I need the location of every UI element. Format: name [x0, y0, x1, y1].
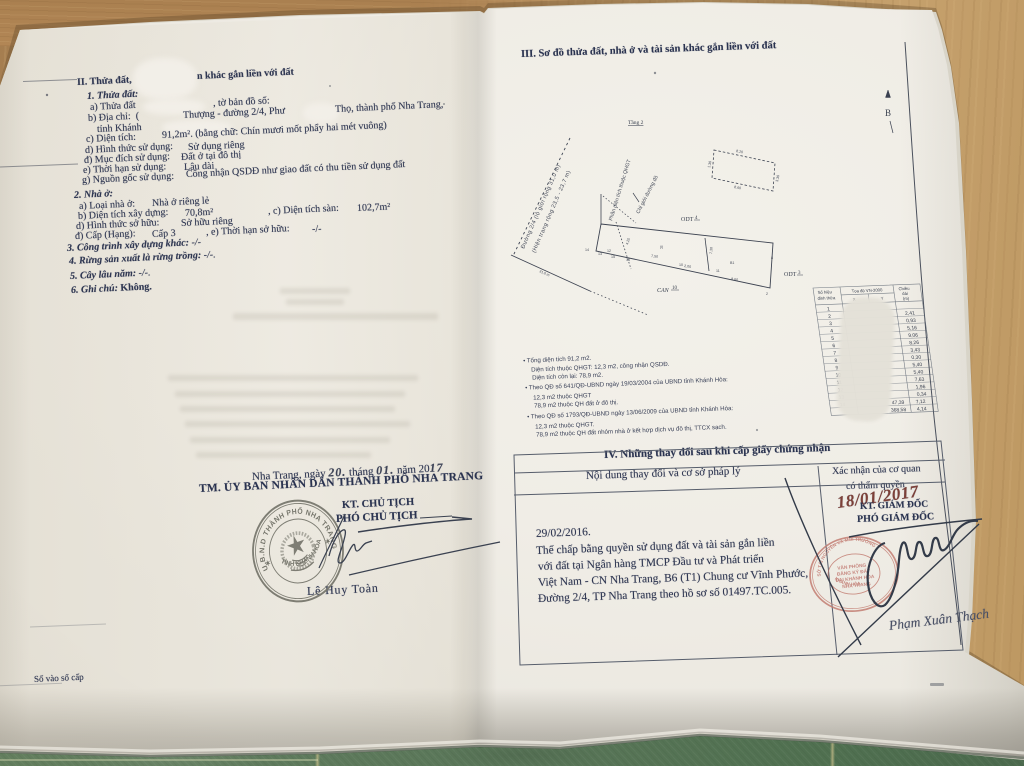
svg-text:0,30: 0,30 [911, 355, 922, 361]
svg-text:2: 2 [766, 292, 768, 296]
svg-text:5: 5 [831, 336, 835, 342]
svg-text:Phần diện tích thuộc QHGT: Phần diện tích thuộc QHGT [608, 158, 633, 221]
svg-text:7,63: 7,63 [914, 377, 925, 383]
svg-text:ODT: ODT [681, 217, 694, 223]
svg-text:5,40: 5,40 [913, 369, 924, 375]
svg-text:CAN: CAN [657, 288, 670, 294]
svg-text:368,58: 368,58 [891, 407, 907, 414]
svg-text:31,0 m: 31,0 m [539, 269, 551, 277]
svg-text:đỉnh thửa: đỉnh thửa [817, 295, 836, 301]
svg-text:3: 3 [829, 321, 833, 327]
svg-text:B: B [885, 108, 891, 118]
svg-text:3,43: 3,43 [910, 347, 921, 353]
svg-text:7,12: 7,12 [915, 399, 926, 405]
svg-text:4,14: 4,14 [917, 406, 928, 412]
svg-text:2,00: 2,00 [684, 264, 691, 269]
svg-text:Tầng 2: Tầng 2 [628, 119, 644, 126]
svg-text:1.30: 1.30 [707, 161, 712, 169]
svg-text:11: 11 [716, 269, 720, 273]
svg-text:14: 14 [585, 248, 589, 252]
svg-text:1: 1 [827, 306, 831, 312]
svg-text:0,93: 0,93 [906, 318, 917, 324]
svg-text:6: 6 [832, 343, 836, 349]
svg-text:3.30: 3.30 [775, 175, 780, 183]
svg-text:2,41: 2,41 [905, 311, 916, 317]
svg-text:0,34: 0,34 [916, 392, 927, 398]
svg-text:Chỉ giới đường đỏ: Chỉ giới đường đỏ [635, 174, 660, 215]
svg-text:5,40: 5,40 [912, 362, 923, 368]
svg-text:(i): (i) [660, 245, 663, 249]
svg-text:8,26: 8,26 [909, 340, 920, 346]
svg-text:4: 4 [830, 328, 834, 334]
svg-text:16: 16 [626, 258, 630, 262]
svg-text:ODT: ODT [784, 272, 797, 278]
svg-text:B1: B1 [730, 261, 734, 265]
svg-text:10: 10 [679, 263, 683, 267]
svg-text:9,06: 9,06 [908, 333, 919, 339]
svg-text:7,30: 7,30 [709, 247, 714, 254]
svg-text:15: 15 [611, 255, 615, 259]
svg-text:1,96: 1,96 [915, 384, 926, 390]
svg-text:8: 8 [771, 256, 773, 260]
svg-text:(m): (m) [903, 296, 911, 301]
svg-text:12: 12 [607, 249, 611, 253]
svg-text:Số hiệu: Số hiệu [817, 289, 833, 295]
svg-text:5,16: 5,16 [907, 325, 918, 331]
svg-text:8: 8 [834, 358, 838, 364]
svg-text:4,20: 4,20 [625, 237, 631, 245]
svg-text:2: 2 [828, 314, 832, 320]
svg-text:47,39: 47,39 [891, 400, 905, 406]
svg-text:8.60: 8.60 [734, 185, 742, 190]
svg-text:Tọa độ VN-2000: Tọa độ VN-2000 [851, 287, 883, 293]
svg-text:8,60: 8,60 [731, 277, 738, 282]
svg-text:7: 7 [833, 351, 837, 357]
svg-text:8.20: 8.20 [736, 149, 744, 154]
svg-text:13: 13 [598, 252, 602, 256]
svg-text:7,50: 7,50 [651, 254, 658, 259]
